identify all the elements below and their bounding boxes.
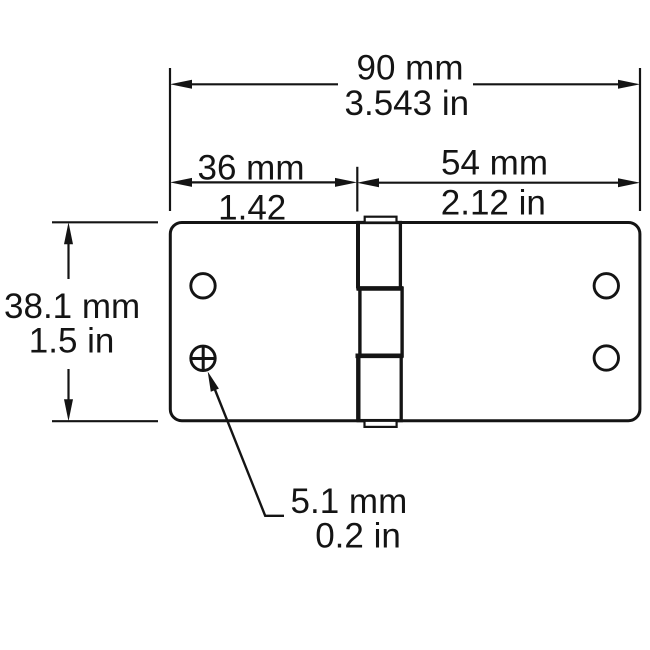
svg-text:0.2 in: 0.2 in xyxy=(315,516,401,555)
svg-text:38.1 mm: 38.1 mm xyxy=(4,287,140,326)
svg-text:1.5 in: 1.5 in xyxy=(29,322,115,361)
svg-text:1.42: 1.42 xyxy=(218,189,286,228)
svg-text:5.1 mm: 5.1 mm xyxy=(291,482,408,521)
svg-text:3.543 in: 3.543 in xyxy=(345,84,470,123)
svg-text:90 mm: 90 mm xyxy=(357,49,464,88)
svg-text:2.12 in: 2.12 in xyxy=(441,184,546,223)
svg-text:54 mm: 54 mm xyxy=(441,143,548,182)
svg-text:36 mm: 36 mm xyxy=(198,148,305,187)
